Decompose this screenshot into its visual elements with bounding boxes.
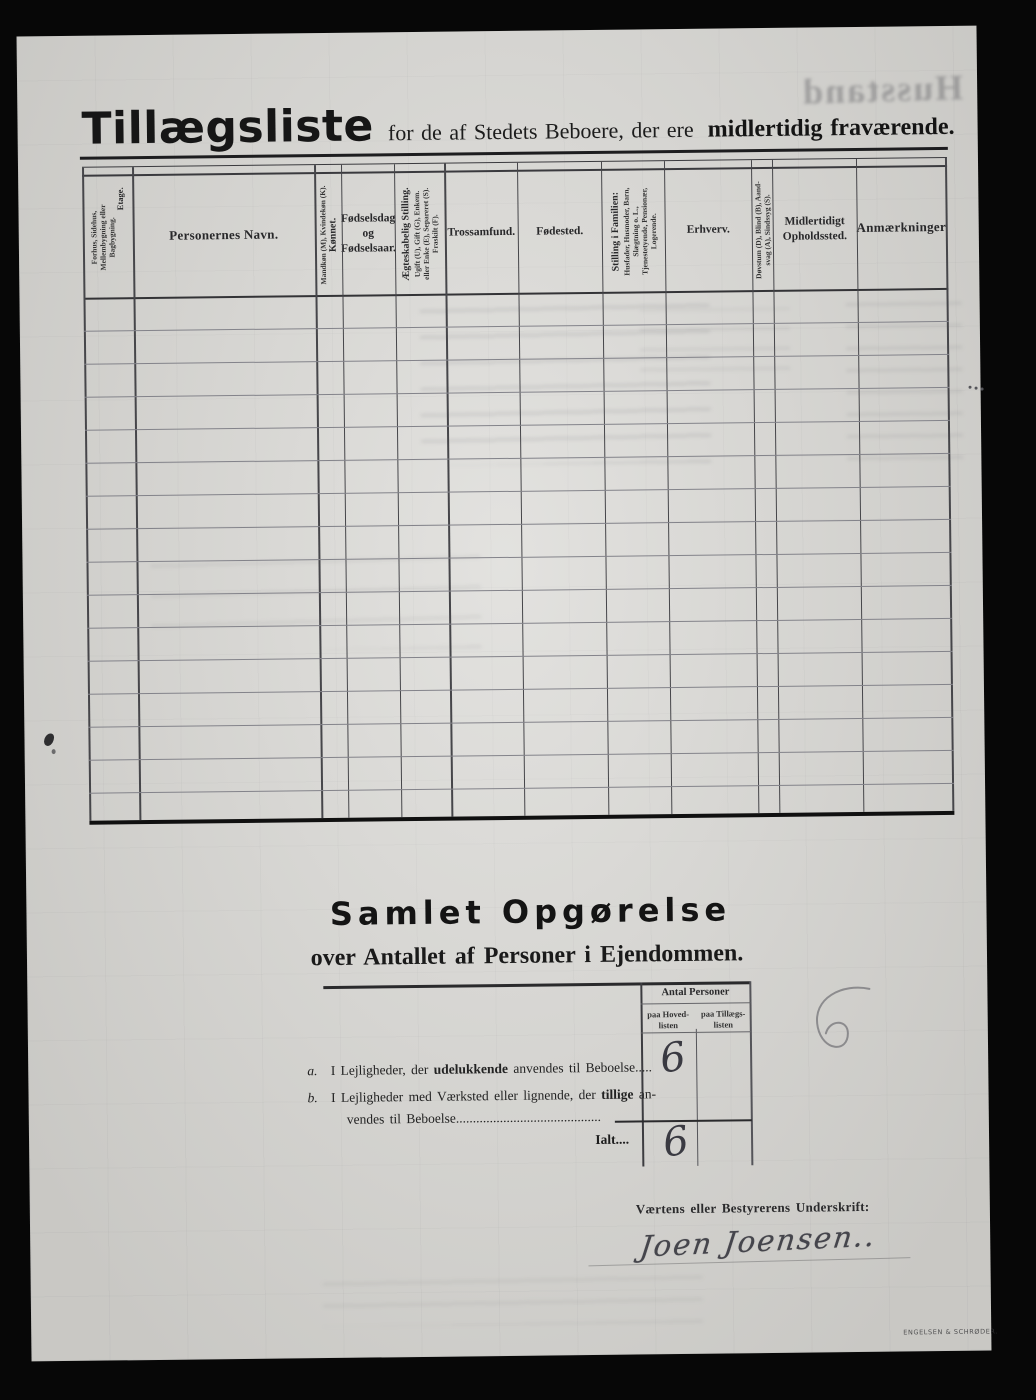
ink-speck: [52, 749, 56, 754]
col-header-midlertidigt-opholdssted: Midlertidigt Opholdssted.: [772, 168, 857, 290]
col-header-stilling-i-familien: Stilling i Familien: Husfader, Husmoder,…: [601, 170, 665, 292]
col-header-anmaerkninger-text: Anmærkninger: [856, 219, 946, 237]
page-title-main: Tillægsliste: [81, 100, 374, 154]
summary-row-b-line2: vendes til Beboelse.....................…: [347, 1109, 601, 1128]
col-header-trossamfund-text: Trossamfund.: [447, 225, 515, 241]
col-header-personernes-navn-text: Personernes Navn.: [169, 227, 278, 245]
table-row-line: [86, 486, 951, 497]
page-title: Tillægsliste for de af Stedets Beboere, …: [81, 94, 962, 155]
col-header-foedselsdag-text: Fødselsdag og Fødselsaar.: [341, 211, 396, 256]
page-title-middle: for de af Stedets Beboere, der ere: [388, 117, 694, 146]
summary-col-hovedlisten: paa Hoved- listen: [641, 1009, 696, 1031]
row-a-text1: I Lejligheder, der: [331, 1062, 429, 1078]
row-b-prefix: b.: [307, 1090, 317, 1105]
table-row-line: [86, 552, 951, 563]
printer-mark: ENGELSEN & SCHRØDER.: [903, 1327, 998, 1336]
row-a-bold-word: udelukkende: [434, 1061, 508, 1077]
table-row-line: [86, 519, 951, 530]
bleedthrough-marks: [323, 1275, 704, 1327]
row-b-leader-dots: ........................................…: [456, 1109, 601, 1126]
row-b-line2-text: vendes til Beboelse: [347, 1111, 456, 1127]
col-header-bygning: Forhus, Sidehus, Mellembygning eller Bag…: [82, 176, 133, 298]
col-header-trossamfund: Trossamfund.: [444, 172, 518, 294]
ink-dots: [969, 386, 972, 389]
col-header-koennet-sub: Mandkøn (M), Kvindekøn (K).: [317, 176, 327, 292]
table-row-line: [85, 387, 950, 398]
table-row-line: [88, 684, 953, 695]
col-header-aegteskabelig: Ægteskabelig Stilling. Ugift (U), Gift (…: [394, 173, 445, 295]
summary-row-a: a. I Lejligheder, der udelukkende anvend…: [307, 1059, 652, 1079]
summary-count-header: Antal Personer: [640, 986, 750, 998]
col-header-etage-text: Etage.: [116, 179, 127, 295]
row-a-leader-dots: .....: [635, 1059, 652, 1074]
col-header-anmaerkninger: Anmærkninger: [856, 167, 946, 289]
col-header-foedselsdag: Fødselsdag og Fødselsaar.: [341, 173, 395, 295]
table-row-line: [88, 651, 953, 662]
handwritten-signature: Joen Joensen..: [638, 1219, 878, 1264]
summary-title: Samlet Opgørelse: [26, 887, 1034, 936]
col-header-bygning-text: Forhus, Sidehus, Mellembygning eller Bag…: [89, 179, 117, 295]
col-header-koennet: Mandkøn (M), Kvindekøn (K). Kønnet.: [314, 174, 342, 295]
table-row-line: [84, 321, 949, 332]
table-row-line: [85, 420, 950, 431]
scanned-census-sheet: Husstand Tillægsliste for de af Stedets …: [17, 26, 992, 1362]
total-leader-dots: ....: [615, 1132, 629, 1147]
summary-col-tillaegslisten: paa Tillægs- listen: [696, 1008, 751, 1030]
col-header-foedested-text: Fødested.: [536, 224, 583, 239]
row-a-prefix: a.: [307, 1063, 317, 1078]
row-a-text2: anvendes til Beboelse: [513, 1060, 635, 1076]
summary-table-middle-line: [696, 1029, 699, 1166]
col-header-erhverv: Erhverv.: [664, 169, 752, 291]
table-row-line: [85, 453, 950, 464]
pen-flourish-mark: [795, 983, 882, 1082]
col-header-stilling-title: Stilling i Familien:: [609, 173, 622, 289]
col-header-aegteskabelig-title: Ægteskabelig Stilling.: [400, 176, 413, 292]
signature-label: Værtens eller Bestyrerens Underskrift:: [636, 1199, 870, 1218]
row-b-text2: an-: [639, 1086, 656, 1101]
census-table: Forhus, Sidehus, Mellembygning eller Bag…: [82, 157, 954, 825]
page-title-bold: midlertidig fraværende.: [708, 114, 955, 144]
table-row-line: [87, 618, 952, 629]
table-row-line: [89, 783, 954, 794]
table-row-line: [84, 354, 949, 365]
table-row-line: [89, 750, 954, 761]
handwritten-count-beboelse: 6: [657, 1034, 688, 1083]
table-row-line: [88, 717, 953, 728]
col-header-doevstum-text: Døvstum (D), Blind (B), Aand- svag (A), …: [753, 171, 772, 287]
col-header-personernes-navn: Personernes Navn.: [132, 174, 315, 297]
total-label-text: Ialt: [595, 1132, 615, 1147]
row-b-bold-word: tillige: [601, 1087, 633, 1102]
summary-subtitle: over Antallet af Personer i Ejendommen.: [27, 937, 1027, 975]
col-header-stilling-sub: Husfader, Husmoder, Barn, Slægtning o. L…: [620, 173, 657, 289]
table-column-line: [945, 158, 954, 811]
handwritten-count-total: 6: [660, 1118, 691, 1167]
ink-speck: [43, 732, 55, 747]
row-b-text1: I Lejligheder med Værksted eller lignend…: [331, 1087, 596, 1105]
total-label: Ialt....: [549, 1132, 629, 1149]
summary-count-header-underline: [641, 1002, 751, 1004]
table-row-line: [87, 585, 952, 596]
col-header-erhverv-text: Erhverv.: [687, 222, 730, 237]
col-header-koennet-title: Kønnet.: [326, 176, 339, 292]
col-header-aegteskabelig-sub: Ugift (U), Gift (G), Enkem. eller Enke (…: [411, 175, 439, 291]
col-header-opholdssted-text: Midlertidigt Opholdssted.: [782, 214, 847, 245]
col-header-foedested: Fødested.: [517, 171, 602, 293]
col-header-doevstum: Døvstum (D), Blind (B), Aand- svag (A), …: [751, 169, 773, 290]
summary-row-b: b. I Lejligheder med Værksted eller lign…: [307, 1086, 656, 1106]
